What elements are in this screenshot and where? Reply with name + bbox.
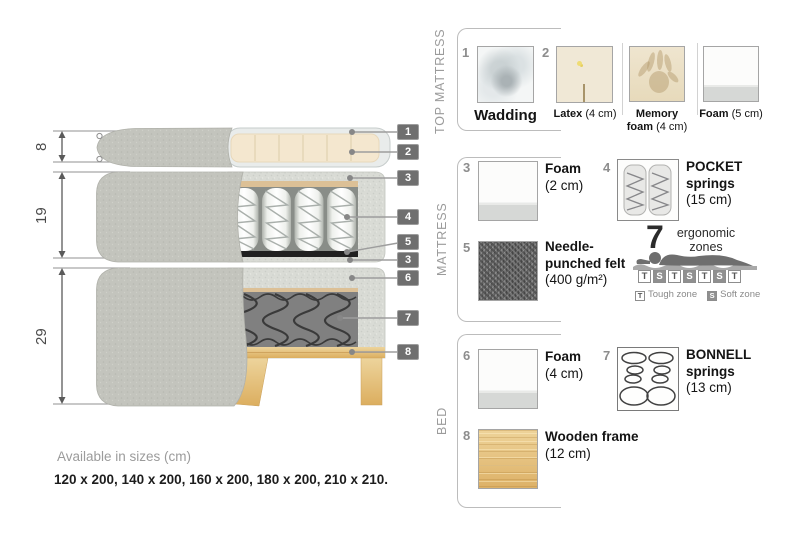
- callout-7: 7: [397, 310, 419, 326]
- latex-label: Latex (4 cm): [542, 108, 628, 121]
- bonnell-springs-size: (13 cm): [686, 380, 766, 397]
- zone-box-t: T: [728, 270, 741, 283]
- option-divider: [622, 43, 623, 115]
- snap-button: [97, 133, 102, 138]
- zone-box-s: S: [713, 270, 726, 283]
- pocket-springs-image: [617, 159, 679, 221]
- callout-4: 4: [397, 209, 419, 225]
- person-silhouette: [637, 252, 754, 266]
- latex-image: [556, 46, 613, 103]
- zone-box-s: S: [653, 270, 666, 283]
- bonnell-springs-drawing: [618, 348, 677, 409]
- ergonomic-zones-number: 7: [646, 222, 664, 252]
- wooden-frame-label: Wooden frame (12 cm): [545, 429, 675, 462]
- foam-5cm-image: [703, 46, 759, 102]
- latex-size: (4 cm): [585, 108, 616, 120]
- felt-layer: [228, 251, 358, 257]
- bonnell-springs-label: BONNELL springs (13 cm): [686, 347, 766, 397]
- callout-1: 1: [397, 124, 419, 140]
- wooden-frame-size: (12 cm): [545, 446, 675, 463]
- callout-3b: 3: [397, 252, 419, 268]
- callout-2: 2: [397, 144, 419, 160]
- callout-5: 5: [397, 234, 419, 250]
- zone-box-t: T: [668, 270, 681, 283]
- legend-num-6: 6: [463, 348, 470, 363]
- felt-image: [478, 241, 538, 301]
- mattress-cover: [97, 172, 244, 262]
- bed-base-cover: [97, 268, 247, 406]
- snap-button: [97, 156, 102, 161]
- bonnell-springs-image: [617, 347, 679, 411]
- latex-name: Latex: [554, 108, 583, 120]
- felt-name: Needle-punched felt: [545, 239, 633, 272]
- foam-5cm-name: Foam: [699, 108, 728, 120]
- zone-legend: TTough zoneSSoft zone: [635, 289, 760, 301]
- wooden-frame-image: [478, 429, 538, 489]
- memory-foam-size: (4 cm): [656, 121, 687, 133]
- legend-num-3: 3: [463, 160, 470, 175]
- callout-3: 3: [397, 170, 419, 186]
- availability-title: Available in sizes (cm): [57, 449, 191, 464]
- callout-6: 6: [397, 270, 419, 286]
- available-sizes: 120 x 200, 140 x 200, 160 x 200, 180 x 2…: [54, 472, 388, 487]
- legend-num-1: 1: [462, 45, 469, 60]
- wadding-image: [477, 46, 534, 103]
- legend-num-2: 2: [542, 45, 549, 60]
- pocket-springs-size: (15 cm): [686, 192, 750, 209]
- felt-size: (400 g/m²): [545, 272, 633, 289]
- callout-8: 8: [397, 344, 419, 360]
- foam-4cm-image: [478, 349, 538, 409]
- option-divider: [697, 43, 698, 115]
- section-title-top-mattress: TOP MATTRESS: [433, 26, 451, 136]
- bonnell-springs-name: BONNELL springs: [686, 347, 766, 380]
- wooden-frame-name: Wooden frame: [545, 429, 675, 446]
- top-mattress-piece: [97, 128, 390, 167]
- soft-zone-key: S: [707, 291, 717, 301]
- memory-foam-image: [629, 46, 685, 102]
- foam-5cm-size: (5 cm): [732, 108, 763, 120]
- pocket-springs-drawing: [618, 160, 678, 220]
- soft-zone-label: Soft zone: [720, 289, 760, 300]
- measure-value-8: 8: [33, 143, 50, 151]
- foam-5cm-label: Foam (5 cm): [691, 108, 771, 121]
- tough-zone-key: T: [635, 291, 645, 301]
- wood-leg: [361, 358, 382, 405]
- measure-value-19: 19: [33, 207, 50, 224]
- foam-2cm-size: (2 cm): [545, 178, 615, 195]
- zone-box-t: T: [638, 270, 651, 283]
- pocket-springs-name: POCKET springs: [686, 159, 750, 192]
- zone-box-s: S: [683, 270, 696, 283]
- tough-zone-label: Tough zone: [648, 289, 697, 300]
- legend-num-8: 8: [463, 428, 470, 443]
- hand-imprint: [630, 47, 684, 101]
- mattress-infographic: 8 19 29: [0, 0, 800, 533]
- zone-boxes-row: TSTSTST: [638, 270, 743, 288]
- felt-label: Needle-punched felt (400 g/m²): [545, 239, 633, 289]
- legend-num-7: 7: [603, 348, 610, 363]
- top-mattress-cover: [97, 128, 232, 167]
- pocket-springs-label: POCKET springs (15 cm): [686, 159, 750, 209]
- section-title-mattress: MATTRESS: [435, 157, 453, 322]
- memory-foam-label: Memory foam (4 cm): [624, 108, 690, 133]
- zone-box-t: T: [698, 270, 711, 283]
- foam-2cm-image: [478, 161, 538, 221]
- section-title-bed: BED: [435, 334, 453, 508]
- wadding-label: Wadding: [457, 107, 554, 124]
- measure-value-29: 29: [33, 328, 50, 345]
- bed-base-piece: [97, 268, 386, 406]
- legend-num-4: 4: [603, 160, 610, 175]
- bed-cross-section-diagram: 8 19 29: [0, 0, 430, 430]
- sleeping-person-diagram: [633, 249, 757, 270]
- legend-num-5: 5: [463, 240, 470, 255]
- mattress-piece: [97, 172, 386, 262]
- foam-4cm-size: (4 cm): [545, 366, 615, 383]
